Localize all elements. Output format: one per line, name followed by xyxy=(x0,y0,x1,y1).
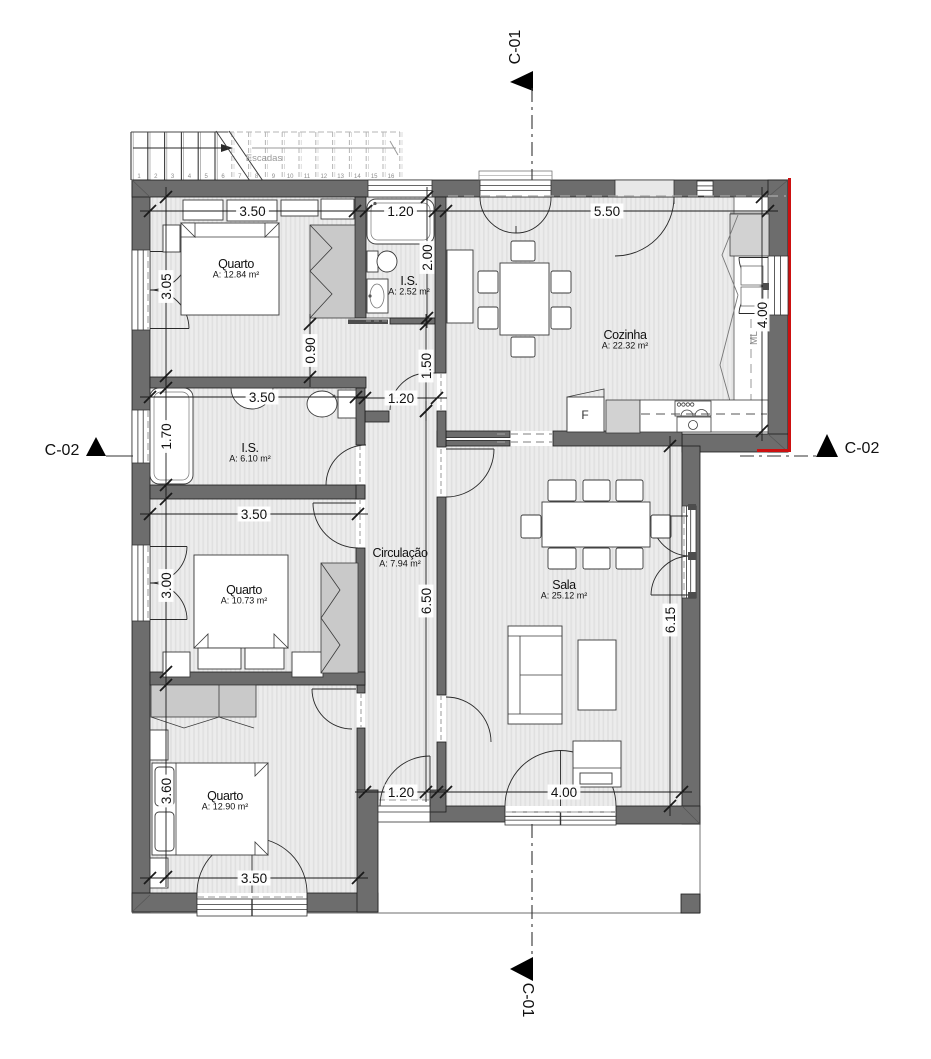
svg-text:A: 10.73 m²: A: 10.73 m² xyxy=(221,596,268,606)
svg-text:15: 15 xyxy=(371,174,378,180)
svg-text:3.50: 3.50 xyxy=(241,507,267,522)
svg-text:11: 11 xyxy=(304,174,311,180)
svg-text:0.90: 0.90 xyxy=(303,337,318,363)
svg-text:A: 6.10 m²: A: 6.10 m² xyxy=(229,454,271,464)
svg-text:4.00: 4.00 xyxy=(755,302,770,328)
svg-text:A: 22.32 m²: A: 22.32 m² xyxy=(602,341,649,351)
svg-text:C-02: C-02 xyxy=(845,440,880,457)
svg-text:1.50: 1.50 xyxy=(419,353,434,379)
svg-text:C-01: C-01 xyxy=(519,983,536,1018)
svg-text:5.50: 5.50 xyxy=(594,204,620,219)
svg-text:1.20: 1.20 xyxy=(388,785,414,800)
svg-text:1.20: 1.20 xyxy=(388,391,414,406)
svg-text:4.00: 4.00 xyxy=(551,785,577,800)
svg-text:6.50: 6.50 xyxy=(419,588,434,614)
svg-text:A: 12.90 m²: A: 12.90 m² xyxy=(202,802,249,812)
svg-text:3.50: 3.50 xyxy=(239,204,265,219)
svg-text:C-02: C-02 xyxy=(45,442,80,459)
svg-text:13: 13 xyxy=(337,174,344,180)
svg-text:1.20: 1.20 xyxy=(387,204,413,219)
svg-text:ML: ML xyxy=(749,331,760,345)
svg-text:A: 25.12 m²: A: 25.12 m² xyxy=(541,591,588,601)
svg-text:10: 10 xyxy=(287,174,294,180)
svg-text:Escadas: Escadas xyxy=(246,153,283,164)
svg-text:6.15: 6.15 xyxy=(663,607,678,633)
svg-text:3.05: 3.05 xyxy=(159,273,174,299)
svg-text:3.60: 3.60 xyxy=(159,778,174,804)
svg-text:A: 7.94 m²: A: 7.94 m² xyxy=(379,559,421,569)
svg-text:F: F xyxy=(581,408,588,422)
svg-text:2.00: 2.00 xyxy=(420,244,435,270)
svg-text:3.00: 3.00 xyxy=(159,572,174,598)
svg-text:3.50: 3.50 xyxy=(241,871,267,886)
svg-text:3.50: 3.50 xyxy=(249,390,275,405)
svg-text:12: 12 xyxy=(320,174,327,180)
svg-text:1.70: 1.70 xyxy=(159,423,174,449)
svg-text:16: 16 xyxy=(388,174,395,180)
svg-text:A: 12.84 m²: A: 12.84 m² xyxy=(213,270,260,280)
svg-text:A: 2.52 m²: A: 2.52 m² xyxy=(388,287,430,297)
svg-text:C-01: C-01 xyxy=(507,30,524,65)
svg-text:14: 14 xyxy=(354,174,361,180)
